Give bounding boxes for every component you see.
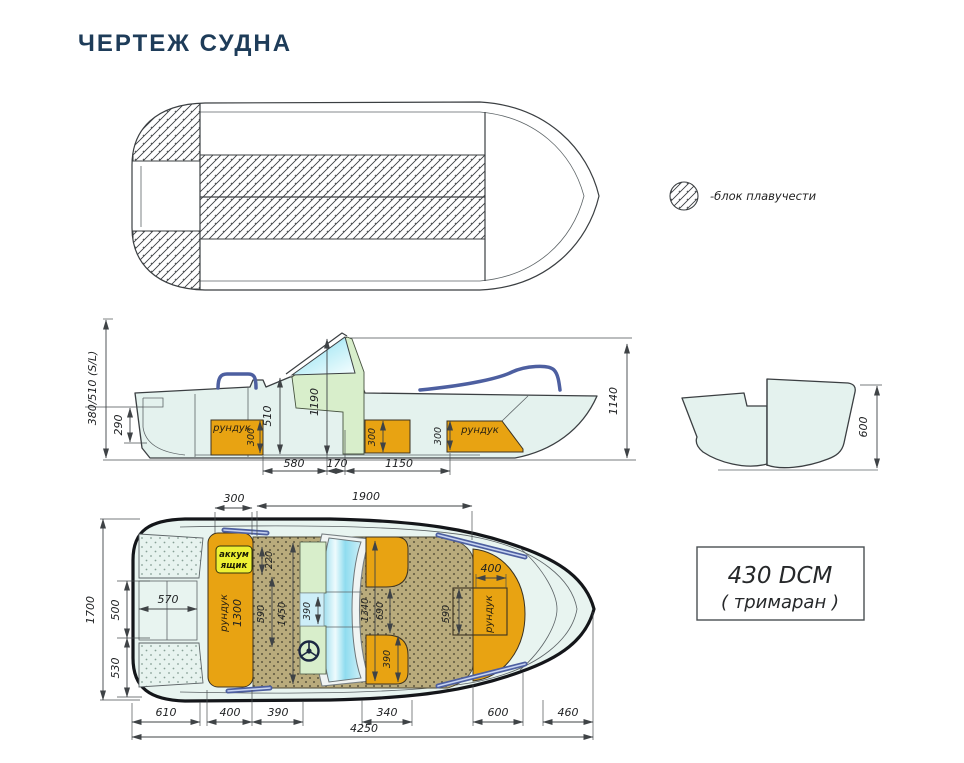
stern-deck-panel-bottom: [139, 643, 203, 687]
dim-1450: 1450: [277, 602, 288, 626]
dim-300: 300: [224, 492, 245, 505]
dim-510: 510: [261, 406, 274, 427]
section-hull-aft: [682, 393, 767, 466]
top-view-inner-lines: [141, 103, 584, 290]
dim-390-gap: 390: [302, 602, 313, 620]
side-locker-fwd-label: рундук: [460, 425, 499, 436]
buoyancy-legend-icon: [670, 182, 698, 210]
dim-400b: 400: [220, 706, 241, 719]
dim-1150: 1150: [385, 457, 413, 470]
side-locker-mid-height: 300: [367, 428, 378, 446]
model-box: 430 DCM ( тримаран ): [697, 547, 864, 620]
side-rail-fwd: [420, 366, 560, 390]
drawing-page: ЧЕРТЕЖ СУДНА: [0, 0, 964, 763]
side-locker-fwd-height: 300: [433, 427, 444, 445]
console-seat-bottom: [300, 626, 326, 674]
dim-4250: 4250: [350, 722, 378, 735]
dim-1190: 1190: [308, 388, 321, 416]
legend-label: -блок плавучести: [710, 189, 817, 203]
dim-sl: 380/510 (S/L): [86, 351, 99, 426]
side-locker-aft-height: 300: [246, 428, 257, 446]
dim-340: 340: [377, 706, 398, 719]
dim-500: 500: [109, 600, 122, 621]
dim-530: 530: [109, 658, 122, 679]
buoyancy-block-stern-bottom: [133, 231, 200, 289]
dim-600b: 600: [488, 706, 509, 719]
dim-390-seat: 390: [382, 650, 393, 668]
plan-view: 570 аккум ящик рундук 1300 220 590 1450: [84, 490, 594, 740]
dim-220: 220: [264, 551, 275, 569]
console-seat-top: [300, 542, 326, 593]
dim-1900: 1900: [352, 490, 380, 503]
dim-1700: 1700: [84, 596, 97, 624]
dim-390b: 390: [268, 706, 289, 719]
dim-610: 610: [156, 706, 177, 719]
section-dimensions: 600: [857, 385, 882, 468]
bow-dim-590: 590: [441, 605, 452, 623]
dim-570: 570: [158, 593, 179, 606]
model-type: ( тримаран ): [721, 592, 839, 613]
dim-460: 460: [558, 706, 579, 719]
dim-690: 690: [375, 602, 386, 620]
legend: -блок плавучести: [670, 182, 817, 210]
dim-1140: 1140: [607, 387, 620, 415]
stern-locker-length: 1300: [231, 599, 244, 627]
section-view: 600: [682, 379, 882, 470]
boat-drawing-canvas: -блок плавучести рундук 300: [0, 0, 964, 763]
dim-1340: 1340: [360, 598, 371, 622]
stern-locker-label: рундук: [219, 594, 230, 633]
dim-590-floor: 590: [256, 605, 267, 623]
top-view: [132, 102, 599, 290]
section-hull-fwd: [767, 379, 855, 468]
dim-170: 170: [327, 457, 348, 470]
bow-dim-400: 400: [481, 562, 502, 575]
dim-290: 290: [112, 415, 125, 436]
battery-label-1: аккум: [219, 550, 249, 560]
buoyancy-block-stern-top: [133, 103, 200, 161]
dim-580: 580: [284, 457, 305, 470]
side-windshield: [292, 337, 355, 375]
side-view: рундук 300 300 300 рундук 380/510 (S/L) …: [85, 319, 636, 475]
model-name: 430 DCM: [728, 563, 833, 589]
dim-600: 600: [857, 417, 870, 438]
mid-seat-top: [366, 537, 408, 587]
stern-deck-panel-top: [139, 534, 203, 578]
battery-label-2: ящик: [220, 561, 248, 571]
bow-locker-label: рундук: [484, 595, 495, 634]
